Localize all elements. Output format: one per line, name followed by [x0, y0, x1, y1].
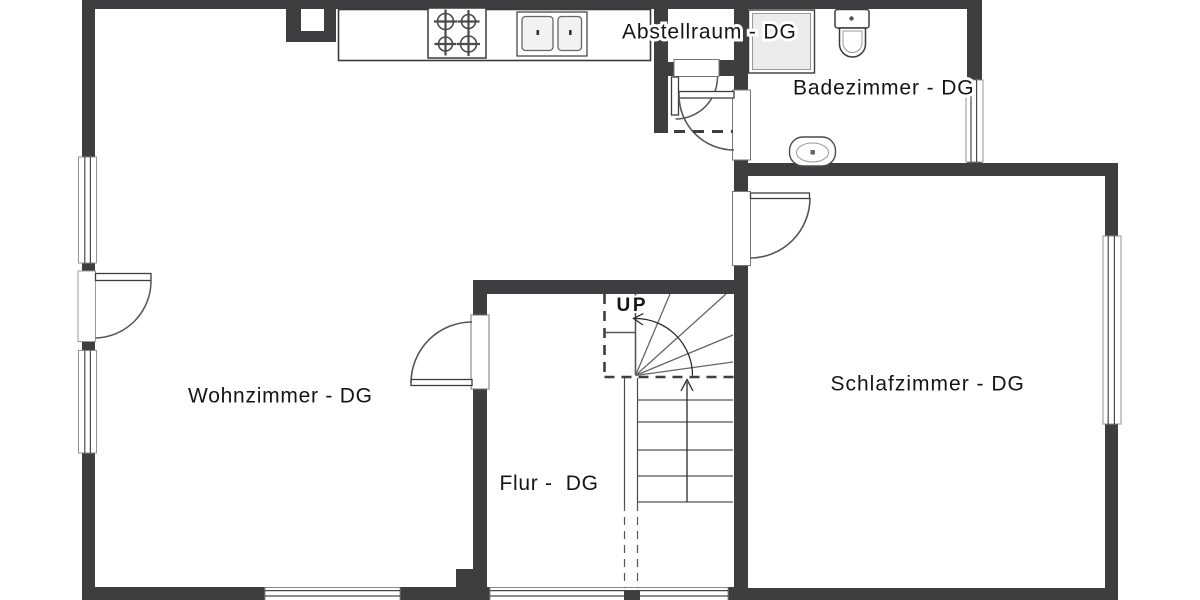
- svg-text:Abstellraum - DG: Abstellraum - DG: [622, 21, 797, 44]
- svg-text:Flur - DG: Flur - DG: [500, 472, 599, 495]
- svg-text:Schlafzimmer - DG: Schlafzimmer - DG: [831, 373, 1025, 396]
- svg-text:Badezimmer - DG: Badezimmer - DG: [793, 77, 975, 100]
- svg-text:UP: UP: [617, 295, 649, 316]
- svg-text:Wohnzimmer - DG: Wohnzimmer - DG: [188, 385, 373, 408]
